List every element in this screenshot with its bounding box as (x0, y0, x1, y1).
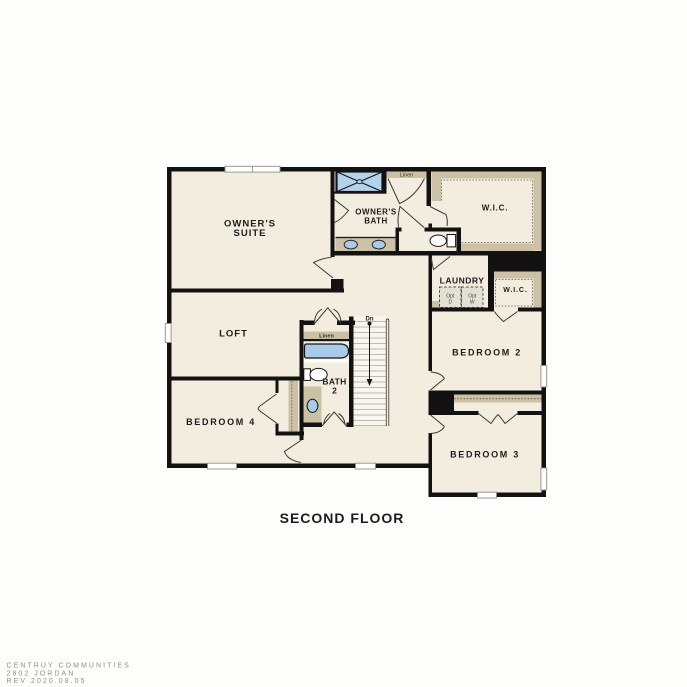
svg-text:W.I.C.: W.I.C. (503, 287, 527, 294)
svg-text:BEDROOM 4: BEDROOM 4 (186, 417, 256, 427)
svg-text:Linen: Linen (400, 173, 413, 179)
svg-text:LAUNDRY: LAUNDRY (440, 276, 485, 286)
svg-text:BEDROOM 3: BEDROOM 3 (450, 450, 520, 460)
svg-text:SECOND FLOOR: SECOND FLOOR (280, 510, 405, 526)
svg-text:BATH: BATH (364, 217, 388, 226)
svg-text:D: D (448, 300, 452, 306)
svg-text:2: 2 (332, 386, 337, 396)
svg-text:BEDROOM 2: BEDROOM 2 (452, 348, 522, 358)
svg-text:LOFT: LOFT (219, 329, 248, 340)
svg-text:Dn: Dn (366, 317, 374, 323)
svg-text:W.I.C.: W.I.C. (482, 204, 509, 213)
svg-text:Linen: Linen (319, 334, 334, 340)
svg-text:REV 2020.08.05: REV 2020.08.05 (7, 678, 87, 685)
svg-text:CENTRUY COMMUNITIES: CENTRUY COMMUNITIES (7, 663, 131, 670)
svg-text:OWNER'S: OWNER'S (355, 208, 397, 217)
svg-text:SUITE: SUITE (234, 228, 267, 239)
svg-text:2802 JORDAN: 2802 JORDAN (7, 670, 76, 677)
svg-text:W: W (470, 300, 475, 306)
